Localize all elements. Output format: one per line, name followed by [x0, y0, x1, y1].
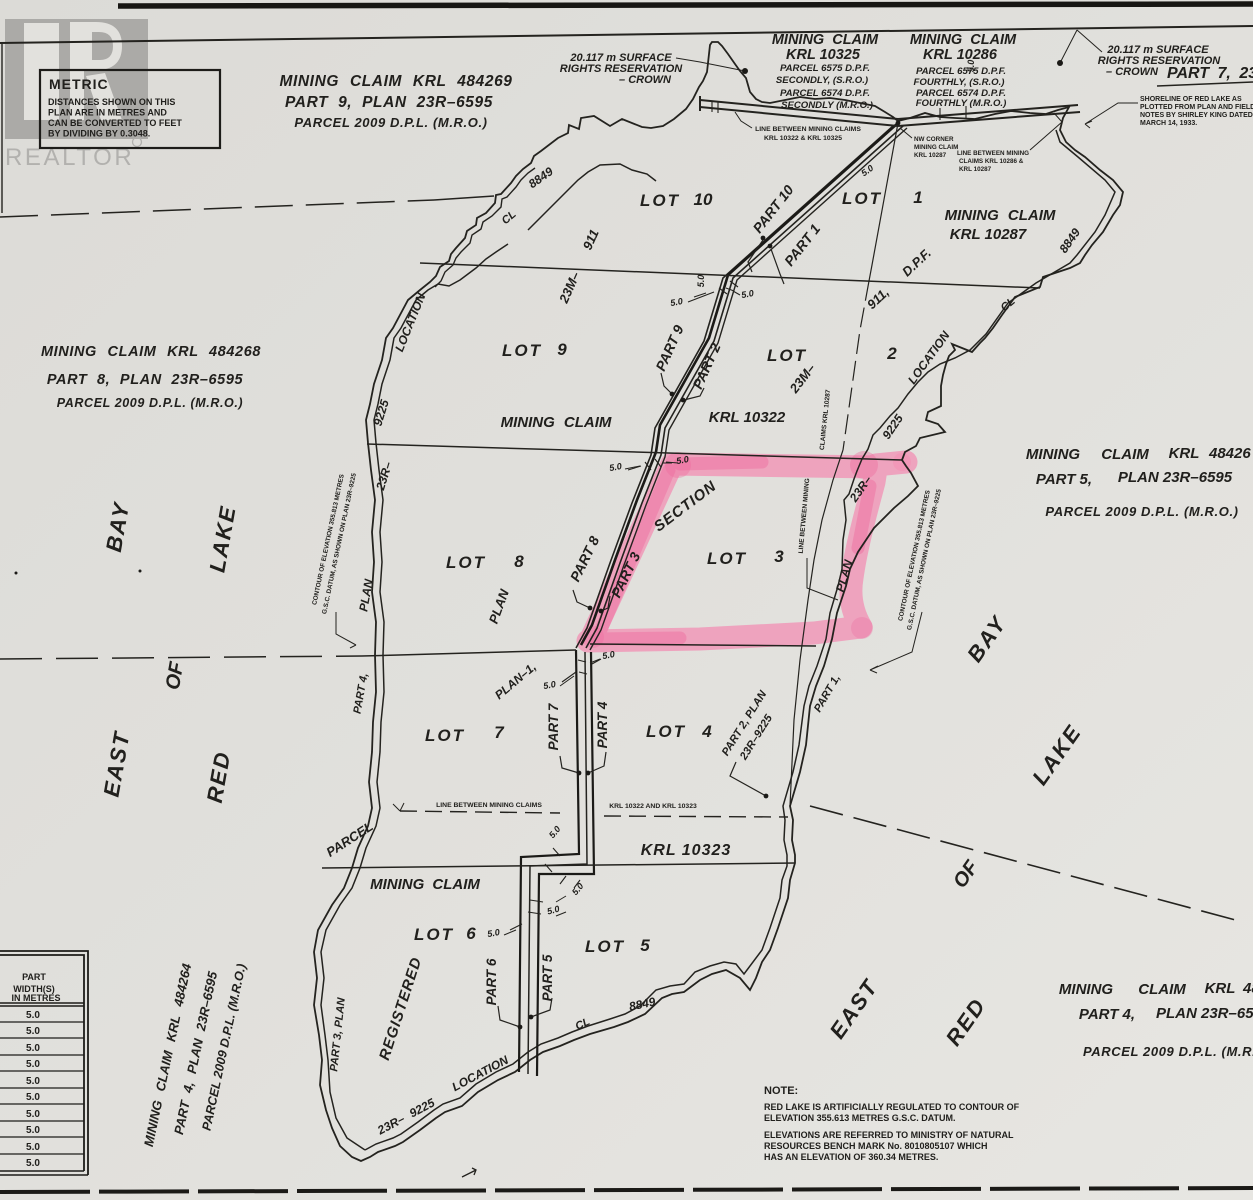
- svg-text:LOT: LOT: [646, 722, 686, 741]
- svg-text:PARCEL 2009 D.P.L. (M.R.O.): PARCEL 2009 D.P.L. (M.R.O.): [57, 396, 243, 410]
- svg-text:NOTES BY SHIRLEY KING DATED: NOTES BY SHIRLEY KING DATED: [1140, 112, 1253, 119]
- svg-text:5.0: 5.0: [740, 288, 754, 300]
- svg-text:MINING CLAIM: MINING CLAIM: [914, 144, 958, 151]
- svg-text:PART 9, PLAN 23R–6595: PART 9, PLAN 23R–6595: [285, 94, 493, 111]
- svg-text:5.0: 5.0: [26, 1043, 40, 1054]
- svg-text:LOT: LOT: [767, 346, 807, 365]
- svg-text:5.0: 5.0: [486, 927, 500, 939]
- svg-text:NW CORNER: NW CORNER: [914, 136, 954, 143]
- svg-text:PLAN 23R–6595: PLAN 23R–6595: [1156, 1005, 1253, 1022]
- svg-text:RESOURCES BENCH MARK No. 80108: RESOURCES BENCH MARK No. 8010805107 WHIC…: [764, 1141, 988, 1151]
- svg-text:MINING: MINING: [1059, 981, 1113, 998]
- svg-text:KRL 10286: KRL 10286: [923, 47, 998, 63]
- svg-text:PART 4: PART 4: [595, 701, 610, 748]
- svg-text:5.0: 5.0: [26, 1026, 40, 1037]
- svg-text:PARCEL 6574 D.P.F.: PARCEL 6574 D.P.F.: [780, 88, 870, 99]
- svg-text:MINING CLAIM: MINING CLAIM: [910, 32, 1017, 48]
- svg-text:LINE BETWEEN MINING: LINE BETWEEN MINING: [957, 150, 1029, 157]
- svg-text:PART 5: PART 5: [540, 954, 555, 1001]
- svg-text:5.0: 5.0: [26, 1158, 40, 1169]
- svg-text:KRL 10325: KRL 10325: [786, 47, 861, 63]
- svg-text:LINE BETWEEN MINING CLAIMS: LINE BETWEEN MINING CLAIMS: [755, 126, 861, 133]
- svg-text:CLAIM: CLAIM: [1101, 446, 1149, 463]
- svg-text:PART 8, PLAN 23R–6595: PART 8, PLAN 23R–6595: [47, 372, 244, 388]
- svg-text:PARCEL 2009 D.P.L. (M.R.O.): PARCEL 2009 D.P.L. (M.R.O.): [294, 115, 487, 130]
- svg-text:PARCEL 2009 D.P.L. (M.R.O.): PARCEL 2009 D.P.L. (M.R.O.): [1083, 1044, 1253, 1059]
- svg-text:5.0: 5.0: [26, 1010, 40, 1021]
- svg-text:MINING CLAIM KRL 484269: MINING CLAIM KRL 484269: [279, 73, 512, 90]
- svg-text:5.0: 5.0: [26, 1059, 40, 1070]
- svg-text:48426: 48426: [1208, 445, 1251, 462]
- svg-text:MINING CLAIM KRL 484268: MINING CLAIM KRL 484268: [41, 344, 261, 360]
- svg-text:MINING CLAIM: MINING CLAIM: [772, 32, 879, 48]
- svg-text:FOURTHLY, (S.R.O.): FOURTHLY, (S.R.O.): [914, 77, 1005, 88]
- svg-text:2: 2: [886, 344, 897, 363]
- svg-text:5.0: 5.0: [669, 296, 683, 308]
- svg-text:KRL 10322: KRL 10322: [709, 409, 786, 426]
- svg-text:– CROWN: – CROWN: [1106, 66, 1159, 78]
- svg-text:LOT: LOT: [425, 726, 465, 745]
- svg-text:10: 10: [694, 190, 713, 209]
- svg-text:7: 7: [494, 723, 505, 742]
- svg-text:5.0: 5.0: [601, 649, 615, 661]
- svg-text:LOT: LOT: [414, 925, 454, 944]
- svg-text:SECONDLY (M.R.O.): SECONDLY (M.R.O.): [781, 100, 873, 111]
- svg-text:LOT: LOT: [707, 549, 747, 568]
- svg-text:PLAN ARE IN METRES AND: PLAN ARE IN METRES AND: [48, 108, 167, 118]
- svg-text:PART 7, 23R–6595: PART 7, 23R–6595: [1167, 65, 1253, 82]
- svg-text:5.0: 5.0: [608, 461, 622, 473]
- svg-text:48: 48: [1242, 980, 1253, 997]
- svg-text:KRL 10287: KRL 10287: [914, 152, 947, 159]
- svg-text:MARCH 14, 1933.: MARCH 14, 1933.: [1140, 120, 1197, 127]
- svg-text:BY DIVIDING BY 0.3048.: BY DIVIDING BY 0.3048.: [48, 129, 150, 139]
- svg-text:ELEVATIONS ARE REFERRED TO MIN: ELEVATIONS ARE REFERRED TO MINISTRY OF N…: [764, 1130, 1014, 1140]
- svg-text:METRIC: METRIC: [49, 76, 109, 92]
- svg-text:1: 1: [913, 188, 922, 207]
- svg-text:LINE BETWEEN MINING CLAIMS: LINE BETWEEN MINING CLAIMS: [436, 802, 542, 809]
- svg-text:5.0: 5.0: [26, 1109, 40, 1120]
- svg-text:5: 5: [640, 936, 650, 955]
- svg-text:RED LAKE IS ARTIFICIALLY REGUL: RED LAKE IS ARTIFICIALLY REGULATED TO CO…: [764, 1102, 1020, 1112]
- svg-text:LOT: LOT: [585, 937, 625, 956]
- svg-text:KRL 10322 & KRL 10325: KRL 10322 & KRL 10325: [764, 135, 842, 142]
- svg-text:KRL 10322 AND KRL 10323: KRL 10322 AND KRL 10323: [609, 803, 697, 810]
- svg-text:MINING CLAIM: MINING CLAIM: [945, 207, 1056, 224]
- svg-text:PART 7: PART 7: [546, 702, 561, 750]
- svg-text:4: 4: [701, 722, 712, 741]
- svg-text:ELEVATION 355.613 METRES G.S.C: ELEVATION 355.613 METRES G.S.C. DATUM.: [764, 1113, 956, 1123]
- svg-text:CLAIMS KRL 10286 &: CLAIMS KRL 10286 &: [959, 158, 1024, 165]
- svg-text:KRL: KRL: [1169, 445, 1200, 462]
- svg-text:6: 6: [466, 924, 476, 943]
- svg-text:NOTE:: NOTE:: [764, 1085, 798, 1097]
- svg-text:5.0: 5.0: [26, 1142, 40, 1153]
- svg-text:MINING: MINING: [1026, 446, 1080, 463]
- svg-text:SECONDLY, (S.R.O.): SECONDLY, (S.R.O.): [776, 75, 868, 86]
- svg-text:LOT: LOT: [842, 189, 882, 208]
- svg-text:PLAN 23R–6595: PLAN 23R–6595: [1118, 469, 1233, 486]
- svg-text:5.0: 5.0: [26, 1092, 40, 1103]
- svg-text:PARCEL 6575 D.P.F.: PARCEL 6575 D.P.F.: [780, 63, 870, 74]
- svg-text:CAN BE CONVERTED TO FEET: CAN BE CONVERTED TO FEET: [48, 118, 182, 128]
- svg-text:LOT: LOT: [502, 341, 542, 360]
- svg-text:5.0: 5.0: [675, 454, 689, 466]
- svg-text:KRL: KRL: [1205, 980, 1236, 997]
- svg-text:LOT: LOT: [446, 553, 486, 572]
- svg-text:3: 3: [774, 547, 784, 566]
- svg-text:PLOTTED FROM PLAN AND FIELD: PLOTTED FROM PLAN AND FIELD: [1140, 104, 1253, 111]
- svg-text:PART 5,: PART 5,: [1036, 471, 1092, 488]
- svg-text:HAS AN ELEVATION OF 360.34 MET: HAS AN ELEVATION OF 360.34 METRES.: [764, 1152, 938, 1162]
- svg-text:5.0: 5.0: [696, 275, 706, 288]
- svg-text:5.0: 5.0: [26, 1076, 40, 1087]
- svg-text:PART 4,: PART 4,: [1079, 1006, 1135, 1023]
- svg-text:– CROWN: – CROWN: [619, 74, 672, 86]
- svg-text:5.0: 5.0: [26, 1125, 40, 1136]
- svg-text:KRL 10287: KRL 10287: [959, 166, 992, 173]
- svg-text:MINING CLAIM: MINING CLAIM: [370, 876, 480, 893]
- svg-text:CLAIM: CLAIM: [1138, 981, 1186, 998]
- svg-text:SHORELINE OF RED LAKE AS: SHORELINE OF RED LAKE AS: [1140, 96, 1242, 103]
- svg-text:PARCEL 6575 D.P.F.: PARCEL 6575 D.P.F.: [916, 66, 1006, 77]
- svg-text:PARCEL 2009 D.P.L. (M.R.O.): PARCEL 2009 D.P.L. (M.R.O.): [1045, 504, 1238, 519]
- svg-text:IN METRES: IN METRES: [11, 993, 60, 1003]
- svg-text:MINING CLAIM: MINING CLAIM: [501, 414, 612, 431]
- svg-text:PART: PART: [22, 972, 46, 982]
- svg-text:8: 8: [514, 552, 524, 571]
- svg-text:LOT: LOT: [640, 191, 680, 210]
- svg-text:FOURTHLY (M.R.O.): FOURTHLY (M.R.O.): [916, 98, 1007, 109]
- svg-text:5.0: 5.0: [966, 60, 976, 73]
- svg-text:PART 6: PART 6: [484, 958, 499, 1005]
- svg-text:9: 9: [557, 340, 567, 359]
- svg-text:KRL 10287: KRL 10287: [950, 226, 1027, 243]
- svg-text:5.0: 5.0: [542, 679, 556, 691]
- svg-text:KRL 10323: KRL 10323: [641, 842, 732, 859]
- svg-text:DISTANCES SHOWN ON THIS: DISTANCES SHOWN ON THIS: [48, 97, 175, 107]
